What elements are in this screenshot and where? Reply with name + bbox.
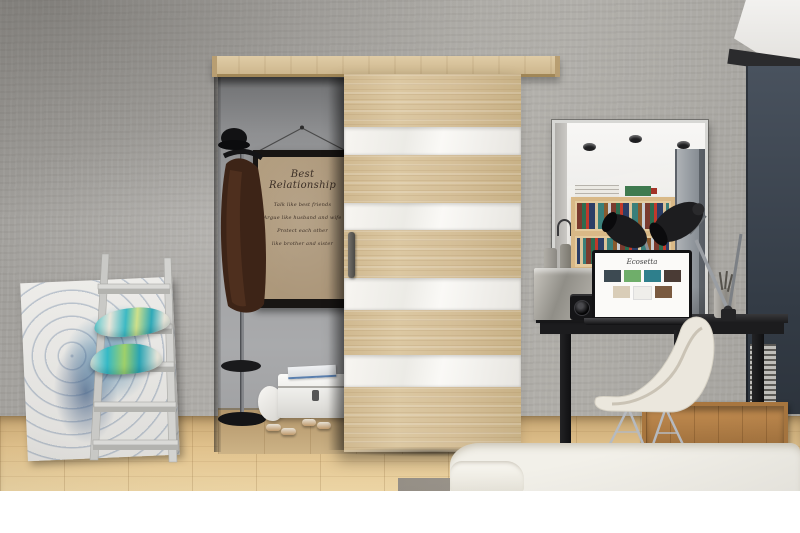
door-handle	[348, 232, 355, 278]
spotlight-icon	[677, 141, 690, 149]
door-white-stripe	[344, 203, 521, 230]
bottom-white-margin	[0, 491, 800, 533]
bed-duvet-fold	[450, 461, 524, 492]
door-oak-stripe	[344, 74, 521, 127]
desk-leg	[560, 334, 571, 452]
coat-stand-base	[218, 412, 266, 426]
rail-end-cap-right	[555, 56, 560, 77]
coat-stand	[214, 120, 274, 432]
headphones-icon	[557, 219, 572, 236]
sliding-door	[344, 74, 521, 452]
spotlight-icon	[583, 143, 596, 151]
desk-lamp	[638, 194, 758, 326]
sandal	[281, 428, 296, 435]
white-shell-chair	[582, 312, 732, 460]
rail-end-cap-left	[212, 56, 217, 77]
door-white-stripe	[344, 355, 521, 387]
door-oak-stripe	[344, 310, 521, 355]
spotlight-icon	[629, 135, 642, 143]
reflected-book-stack	[575, 185, 619, 197]
interior-photo: Best Relationship Talk like best friends…	[0, 0, 800, 533]
thumbnail	[604, 270, 621, 282]
sandal	[266, 424, 281, 431]
coat-stand-tray	[221, 360, 261, 372]
door-white-stripe	[344, 127, 521, 155]
thumbnail	[613, 286, 630, 298]
door-oak-stripe	[344, 230, 521, 278]
sandal	[302, 419, 316, 426]
door-oak-stripe	[344, 155, 521, 203]
door-white-stripe	[344, 278, 521, 310]
trunk-lock	[312, 390, 319, 401]
